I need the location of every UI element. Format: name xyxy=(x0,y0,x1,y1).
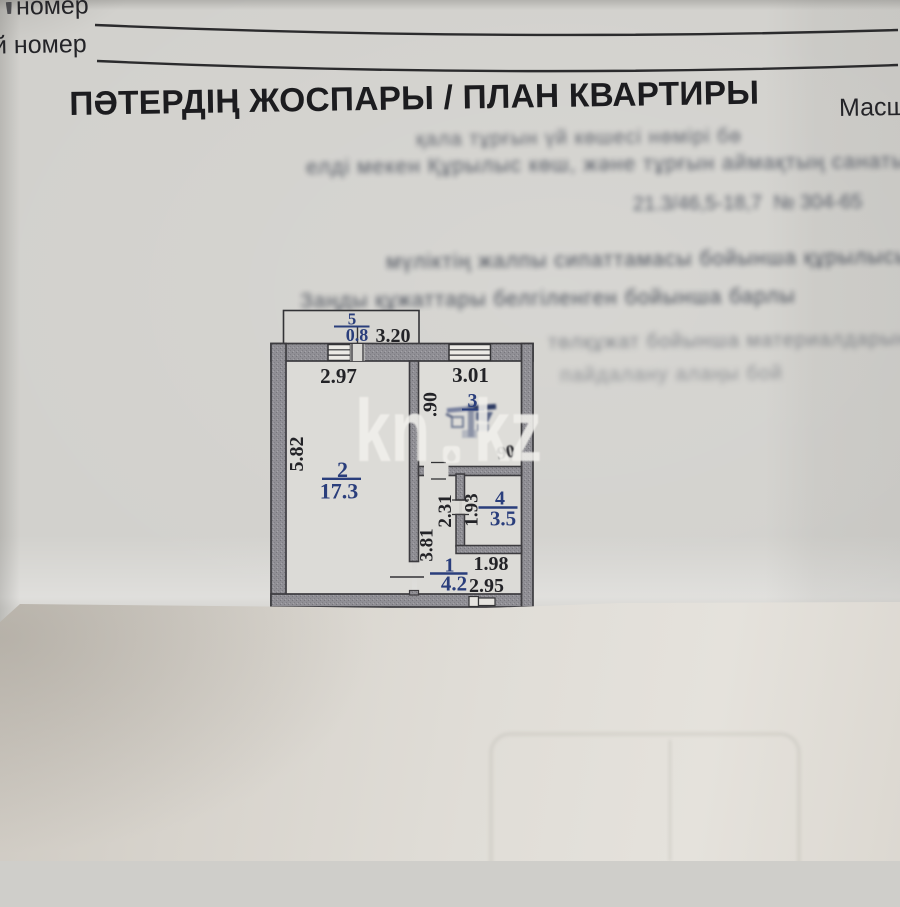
svg-text:kn: kn xyxy=(355,382,430,480)
svg-text:kz: kz xyxy=(474,382,542,480)
